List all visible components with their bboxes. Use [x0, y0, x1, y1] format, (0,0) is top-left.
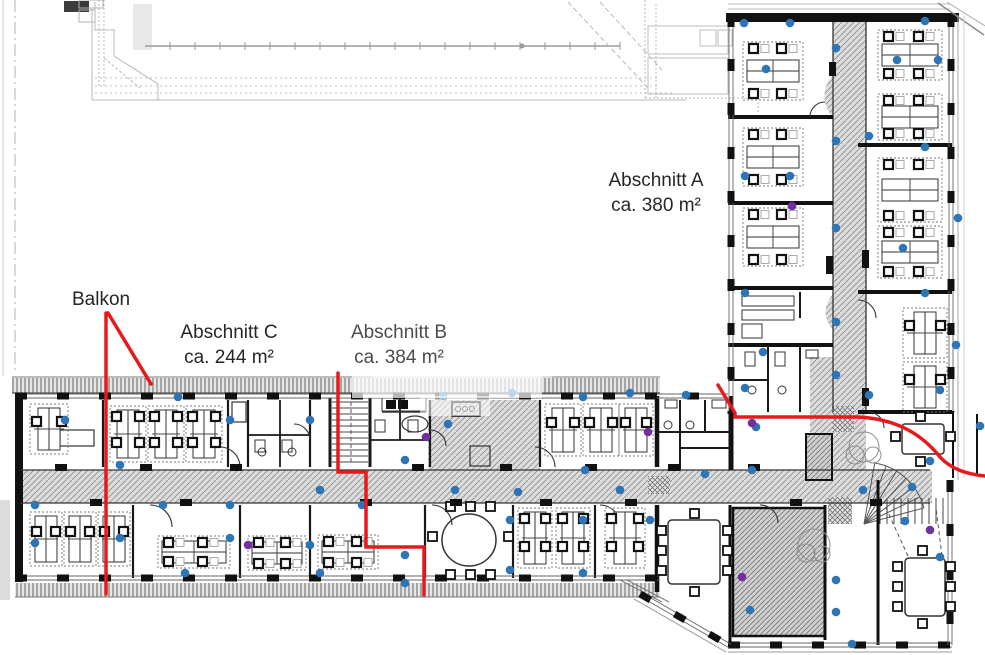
- plan-circle: [778, 386, 786, 394]
- blue-dot: [899, 244, 908, 253]
- chair: [777, 175, 786, 184]
- hatched-area: [828, 497, 852, 524]
- blue-dot: [832, 608, 841, 617]
- blue-dot: [579, 516, 588, 525]
- side-table: [926, 268, 934, 276]
- blue-dot: [174, 393, 183, 402]
- chair: [211, 412, 220, 421]
- purple-dot: [738, 573, 747, 582]
- wall-pier: [709, 634, 719, 640]
- chair: [918, 619, 927, 628]
- plan-circle: [865, 447, 881, 463]
- chair: [558, 542, 567, 551]
- blue-dot: [936, 386, 945, 395]
- chair: [642, 418, 651, 427]
- chair: [324, 537, 333, 546]
- chair: [657, 566, 666, 575]
- chair: [254, 538, 263, 547]
- chair: [749, 175, 758, 184]
- door-block: [668, 464, 680, 471]
- chair: [914, 160, 923, 169]
- label-balkon: Balkon: [72, 287, 130, 312]
- blue-dot: [832, 224, 841, 233]
- blue-dot: [921, 289, 930, 298]
- desk-cluster: [110, 406, 146, 462]
- chair: [749, 210, 758, 219]
- desk-cluster: [64, 512, 96, 566]
- blue-dot: [786, 172, 795, 181]
- plan-circle: [664, 421, 672, 429]
- desk-cluster: [518, 508, 552, 568]
- label-abschnitt-c-area: ca. 244 m²: [168, 345, 290, 370]
- chair: [905, 375, 914, 384]
- chair: [281, 538, 290, 547]
- blue-dot: [401, 551, 410, 560]
- chair: [324, 558, 333, 567]
- door-block: [829, 62, 836, 76]
- desk-cluster: [148, 406, 184, 462]
- chair: [723, 566, 732, 575]
- plan-ellipse: [402, 416, 428, 432]
- side-table: [926, 161, 934, 169]
- blue-dot: [832, 371, 841, 380]
- blue-dot: [116, 534, 125, 543]
- plan-rect: [668, 520, 720, 584]
- chair: [547, 418, 556, 427]
- side-table: [364, 559, 372, 567]
- chair: [884, 160, 893, 169]
- chair: [690, 509, 699, 518]
- side-table: [266, 539, 274, 547]
- door-block: [230, 464, 242, 471]
- side-table: [896, 130, 904, 138]
- plan-line: [600, 2, 662, 70]
- side-table: [789, 131, 797, 139]
- chair: [914, 129, 923, 138]
- door-block: [180, 499, 192, 506]
- blue-dot: [181, 569, 190, 578]
- side-table: [926, 212, 934, 220]
- chair: [621, 418, 630, 427]
- blue-dot: [759, 348, 768, 357]
- chair: [690, 587, 699, 596]
- blue-dot: [832, 576, 841, 585]
- blue-dot: [226, 534, 235, 543]
- side-table: [896, 229, 904, 237]
- blue-dot: [626, 389, 635, 398]
- blue-dot: [848, 640, 857, 649]
- plan-rect: [718, 30, 732, 46]
- watermark-wash-rect: [420, 396, 490, 416]
- chair: [918, 546, 927, 555]
- plan-rect: [700, 30, 716, 46]
- chair: [914, 211, 923, 220]
- chair: [657, 546, 666, 555]
- floorplan-svg: [0, 0, 985, 655]
- purple-dot: [422, 433, 431, 442]
- blue-dot: [921, 17, 930, 26]
- door-block: [412, 464, 424, 471]
- desk-cluster: [545, 404, 581, 456]
- chair: [723, 546, 732, 555]
- blue-dot: [954, 214, 963, 223]
- floorplan-page: Balkon Abschnitt C ca. 244 m² Abschnitt …: [0, 0, 985, 655]
- side-table: [926, 229, 934, 237]
- wall-pier: [675, 614, 685, 620]
- chair: [884, 211, 893, 220]
- blue-dot: [936, 553, 945, 562]
- blue-dot: [401, 456, 410, 465]
- chair: [198, 538, 207, 547]
- blue-dot: [616, 486, 625, 495]
- chair: [893, 582, 902, 591]
- chair: [891, 432, 900, 441]
- plan-rect: [282, 440, 292, 452]
- chair: [541, 542, 550, 551]
- label-abschnitt-c-name: Abschnitt C: [168, 320, 290, 345]
- blue-dot: [934, 56, 943, 65]
- chair: [914, 228, 923, 237]
- label-abschnitt-a-area: ca. 380 m²: [592, 193, 720, 218]
- blue-dot: [952, 341, 961, 350]
- chair: [486, 502, 495, 511]
- chair: [188, 412, 197, 421]
- desk-cluster: [743, 42, 803, 100]
- blue-dot: [581, 466, 590, 475]
- chair: [946, 432, 955, 441]
- door-block: [826, 256, 833, 274]
- plan-line: [568, 2, 648, 88]
- chair: [749, 89, 758, 98]
- chair: [946, 602, 955, 611]
- chair: [504, 532, 513, 541]
- label-abschnitt-c: Abschnitt C ca. 244 m²: [168, 320, 290, 370]
- desk-cluster: [318, 535, 378, 569]
- chair: [520, 514, 529, 523]
- blue-dot: [976, 422, 985, 431]
- chair: [446, 570, 455, 579]
- chair: [211, 438, 220, 447]
- desk-cluster: [903, 308, 947, 358]
- blue-dot: [865, 132, 874, 141]
- side-table: [293, 560, 301, 568]
- chair: [905, 321, 914, 330]
- plan-rect: [60, 430, 94, 446]
- blue-dot: [116, 461, 125, 470]
- chair: [66, 527, 75, 536]
- chair: [946, 562, 955, 571]
- side-table: [761, 45, 769, 53]
- desk-cluster: [878, 94, 942, 140]
- desk-cluster: [605, 508, 645, 568]
- chair: [198, 557, 207, 566]
- blue-dot: [451, 486, 460, 495]
- plan-rect: [742, 324, 762, 338]
- blue-dot: [31, 539, 40, 548]
- door-block: [55, 464, 67, 471]
- hatched-area: [12, 378, 660, 393]
- blue-dot: [159, 501, 168, 510]
- blue-dot: [893, 56, 902, 65]
- side-table: [896, 97, 904, 105]
- side-table: [896, 161, 904, 169]
- chair: [608, 418, 617, 427]
- blue-dot: [832, 44, 841, 53]
- chair: [150, 438, 159, 447]
- plan-rect: [806, 350, 818, 358]
- blue-dot: [31, 501, 40, 510]
- plan-rect: [408, 420, 418, 432]
- hatched-area: [20, 470, 932, 503]
- hatch-zones: [12, 20, 932, 636]
- plan-rect: [133, 4, 152, 50]
- side-table: [926, 33, 934, 41]
- plan-path: [294, 424, 310, 440]
- chair: [466, 502, 475, 511]
- door-block: [790, 499, 802, 506]
- door-block: [870, 499, 882, 506]
- chair: [723, 526, 732, 535]
- plan-rect: [712, 400, 726, 408]
- chair: [520, 542, 529, 551]
- door-block: [140, 464, 152, 471]
- desk-cluster: [98, 512, 130, 566]
- plan-rect: [665, 400, 677, 408]
- blue-dot: [740, 19, 749, 28]
- plan-rect: [775, 352, 785, 366]
- side-table: [896, 212, 904, 220]
- desk-cluster: [743, 208, 803, 266]
- door-block: [500, 464, 512, 471]
- plan-rect: [742, 296, 794, 306]
- door-block: [625, 499, 637, 506]
- chair: [466, 570, 475, 579]
- side-table: [926, 97, 934, 105]
- chair: [112, 438, 121, 447]
- desk-cluster: [158, 536, 230, 568]
- chair: [428, 532, 437, 541]
- balkon-leader-right: [108, 313, 151, 384]
- side-table: [761, 176, 769, 184]
- chair: [607, 542, 616, 551]
- chair: [884, 32, 893, 41]
- chair: [585, 418, 594, 427]
- plan-ellipse: [442, 514, 496, 566]
- chair: [936, 321, 945, 330]
- blue-dot: [514, 488, 523, 497]
- chair: [135, 412, 144, 421]
- side-table: [761, 90, 769, 98]
- blue-dot: [741, 384, 750, 393]
- blue-dot: [701, 470, 710, 479]
- label-abschnitt-b-area: ca. 384 m²: [338, 345, 460, 370]
- purple-dot: [644, 428, 653, 437]
- blue-dot: [865, 391, 874, 400]
- door-block: [540, 499, 552, 506]
- desk-cluster: [878, 30, 942, 80]
- desk-cluster: [186, 406, 222, 462]
- chair: [916, 457, 925, 466]
- blue-dot: [762, 65, 771, 74]
- chair: [51, 527, 60, 536]
- chair: [893, 602, 902, 611]
- plan-path: [810, 102, 825, 117]
- side-table: [789, 45, 797, 53]
- side-table: [896, 70, 904, 78]
- blue-dot: [579, 393, 588, 402]
- blue-dot: [646, 516, 655, 525]
- label-abschnitt-b: Abschnitt B ca. 384 m²: [338, 320, 460, 370]
- side-table: [896, 268, 904, 276]
- chair: [946, 582, 955, 591]
- chair: [914, 69, 923, 78]
- chair: [749, 130, 758, 139]
- side-table: [761, 211, 769, 219]
- hatched-area: [832, 406, 854, 432]
- plan-rect: [375, 420, 385, 432]
- plan-line: [936, 508, 942, 556]
- door-block: [862, 250, 869, 268]
- chair: [173, 412, 182, 421]
- hatched-area: [648, 476, 670, 494]
- side-table: [266, 560, 274, 568]
- plan-line: [104, 58, 140, 88]
- plan-rect: [386, 400, 396, 409]
- chair: [173, 438, 182, 447]
- label-abschnitt-a: Abschnitt A ca. 380 m²: [592, 168, 720, 218]
- chair: [884, 228, 893, 237]
- watermark-wash-rect: [352, 376, 542, 398]
- label-abschnitt-a-name: Abschnitt A: [592, 168, 720, 193]
- plan-rect: [15, 396, 23, 582]
- side-table: [789, 90, 797, 98]
- side-table: [176, 539, 184, 547]
- chair: [884, 267, 893, 276]
- chair: [749, 44, 758, 53]
- chair: [884, 69, 893, 78]
- blue-dot: [316, 486, 325, 495]
- desk-cluster: [878, 158, 942, 222]
- plan-rect: [905, 558, 945, 616]
- purple-dot: [748, 419, 757, 428]
- blue-dot: [786, 19, 795, 28]
- blue-dot: [579, 569, 588, 578]
- side-table: [336, 538, 344, 546]
- chair: [884, 96, 893, 105]
- blue-dot: [506, 516, 515, 525]
- blue-dot: [832, 318, 841, 327]
- chair: [558, 514, 567, 523]
- side-table: [293, 539, 301, 547]
- chair: [579, 542, 588, 551]
- chair: [541, 514, 550, 523]
- blue-dot: [444, 420, 453, 429]
- blue-dot: [921, 143, 930, 152]
- chair: [352, 537, 361, 546]
- blue-dot: [832, 137, 841, 146]
- blue-dot: [901, 517, 910, 526]
- hatched-area: [825, 20, 867, 412]
- blue-dot: [859, 486, 868, 495]
- blue-dot: [226, 501, 235, 510]
- side-table: [336, 559, 344, 567]
- hatched-area: [806, 434, 832, 480]
- side-table: [210, 558, 218, 566]
- side-table: [789, 256, 797, 264]
- chair: [281, 559, 290, 568]
- side-table: [210, 539, 218, 547]
- chair: [749, 255, 758, 264]
- blue-dot: [682, 391, 691, 400]
- chair: [914, 32, 923, 41]
- chair: [936, 375, 945, 384]
- side-table: [761, 131, 769, 139]
- label-abschnitt-b-name: Abschnitt B: [338, 320, 460, 345]
- hatched-area: [733, 508, 825, 636]
- chair: [352, 558, 361, 567]
- plan-rect: [0, 500, 10, 600]
- chair: [112, 412, 121, 421]
- blue-dot: [61, 416, 70, 425]
- chair: [85, 527, 94, 536]
- blue-dot: [306, 541, 315, 550]
- purple-dot: [244, 541, 253, 550]
- plan-rect: [745, 352, 755, 366]
- chair: [777, 255, 786, 264]
- side-table: [176, 558, 184, 566]
- plan-circle: [520, 44, 525, 49]
- hatched-area: [15, 583, 660, 597]
- plan-rect: [648, 58, 728, 94]
- chair: [164, 538, 173, 547]
- side-table: [761, 256, 769, 264]
- side-table: [926, 130, 934, 138]
- blue-dot: [748, 466, 757, 475]
- chair: [777, 130, 786, 139]
- chair: [32, 417, 41, 426]
- chair: [914, 267, 923, 276]
- plan-rect: [255, 440, 265, 452]
- blue-dot: [316, 569, 325, 578]
- chair: [657, 526, 666, 535]
- blue-dot: [306, 416, 315, 425]
- chair: [254, 559, 263, 568]
- plan-rect: [742, 310, 794, 320]
- chair: [188, 438, 197, 447]
- chair: [634, 514, 643, 523]
- chair: [150, 412, 159, 421]
- blue-dot: [741, 172, 750, 181]
- chair: [570, 418, 579, 427]
- chair: [884, 129, 893, 138]
- chair: [32, 527, 41, 536]
- side-table: [896, 33, 904, 41]
- chair: [634, 542, 643, 551]
- desk-cluster: [878, 226, 942, 278]
- desk-cluster: [248, 536, 306, 570]
- desk-cluster: [583, 404, 619, 456]
- blue-dot: [908, 483, 917, 492]
- chair: [164, 557, 173, 566]
- blue-dot: [226, 416, 235, 425]
- plan-line: [634, 599, 726, 652]
- door-block: [90, 499, 102, 506]
- chair: [777, 89, 786, 98]
- side-table: [926, 70, 934, 78]
- chair: [916, 412, 925, 421]
- blue-dot: [401, 579, 410, 588]
- chair: [777, 44, 786, 53]
